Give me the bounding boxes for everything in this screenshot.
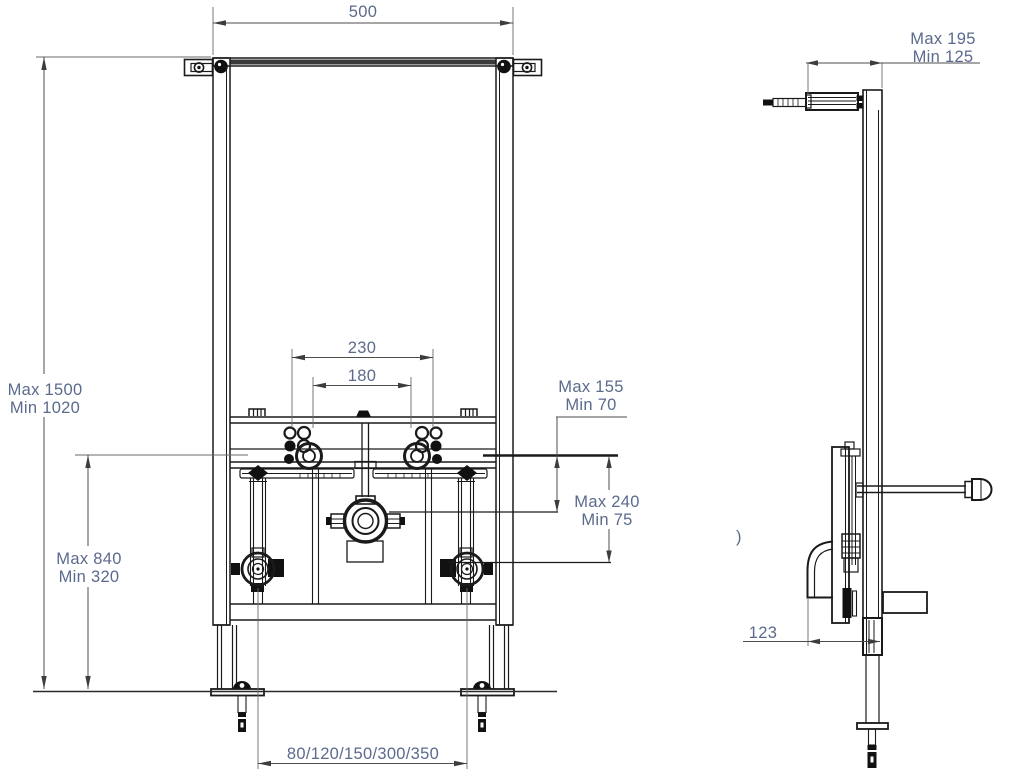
side-rail [863, 90, 882, 655]
right-foot [461, 681, 514, 732]
upper-mounting-rail [230, 409, 496, 423]
dim-label-drain-offset-max: Max 240 [574, 493, 639, 511]
side-top-bracket [763, 93, 863, 110]
dim-label-stud-outer: 230 [348, 339, 376, 357]
side-wall-anchor-rod [857, 479, 992, 500]
dim-label-drain-offset-min: Min 75 [581, 511, 632, 529]
drain-assembly [326, 424, 405, 563]
dim-label-lower-height-max: Max 840 [56, 550, 121, 568]
top-crossbar [213, 58, 513, 66]
left-foot [211, 681, 264, 732]
left-rail [213, 58, 230, 625]
side-pipe-stub [883, 592, 927, 613]
dim-label-top-offset-min: Min 70 [565, 396, 616, 414]
side-leg [857, 655, 888, 768]
stray-parenthesis-mark: ) [736, 528, 742, 546]
dim-label-overall-height-max: Max 1500 [8, 381, 83, 399]
dim-overall-height: Max 1500 Min 1020 [8, 57, 211, 689]
side-view [763, 90, 992, 768]
dim-stud-inner: 180 [313, 367, 411, 428]
dim-side-depth: Max 195 Min 125 [806, 30, 980, 94]
left-wall-bracket [185, 60, 228, 76]
drawing-canvas: 500 Max 1500 Min 1020 Max 840 Min 320 23… [0, 0, 1012, 779]
front-view [33, 58, 618, 732]
dim-label-top-width: 500 [349, 3, 377, 21]
dim-label-stud-inner: 180 [348, 367, 376, 385]
dim-label-top-offset-max: Max 155 [558, 378, 623, 396]
technical-drawing-page: 500 Max 1500 Min 1020 Max 840 Min 320 23… [0, 0, 1012, 779]
dim-drain-offset: Max 240 Min 75 [574, 456, 639, 563]
left-valve [231, 553, 284, 592]
right-valve [440, 553, 493, 592]
dim-label-water-spacing: 80/120/150/300/350 [287, 745, 439, 763]
dim-frame-depth: 123 [743, 599, 880, 646]
dim-label-overall-height-min: Min 1020 [10, 399, 80, 417]
dim-label-lower-height-min: Min 320 [59, 568, 120, 586]
dim-top-width: 500 [213, 3, 513, 55]
dim-lower-height: Max 840 Min 320 [56, 455, 248, 689]
inner-struts [313, 468, 432, 604]
right-leg [490, 625, 509, 689]
dim-label-side-depth-min: Min 125 [913, 48, 974, 66]
dim-label-side-depth-max: Max 195 [910, 30, 975, 48]
dim-top-offset: Max 155 Min 70 [554, 378, 627, 512]
lower-crossbar [230, 449, 496, 468]
dim-label-frame-depth: 123 [749, 624, 777, 642]
dim-water-spacing: 80/120/150/300/350 [258, 588, 467, 769]
left-leg [218, 625, 237, 689]
right-rail [496, 58, 513, 625]
right-wall-bracket [497, 60, 541, 76]
